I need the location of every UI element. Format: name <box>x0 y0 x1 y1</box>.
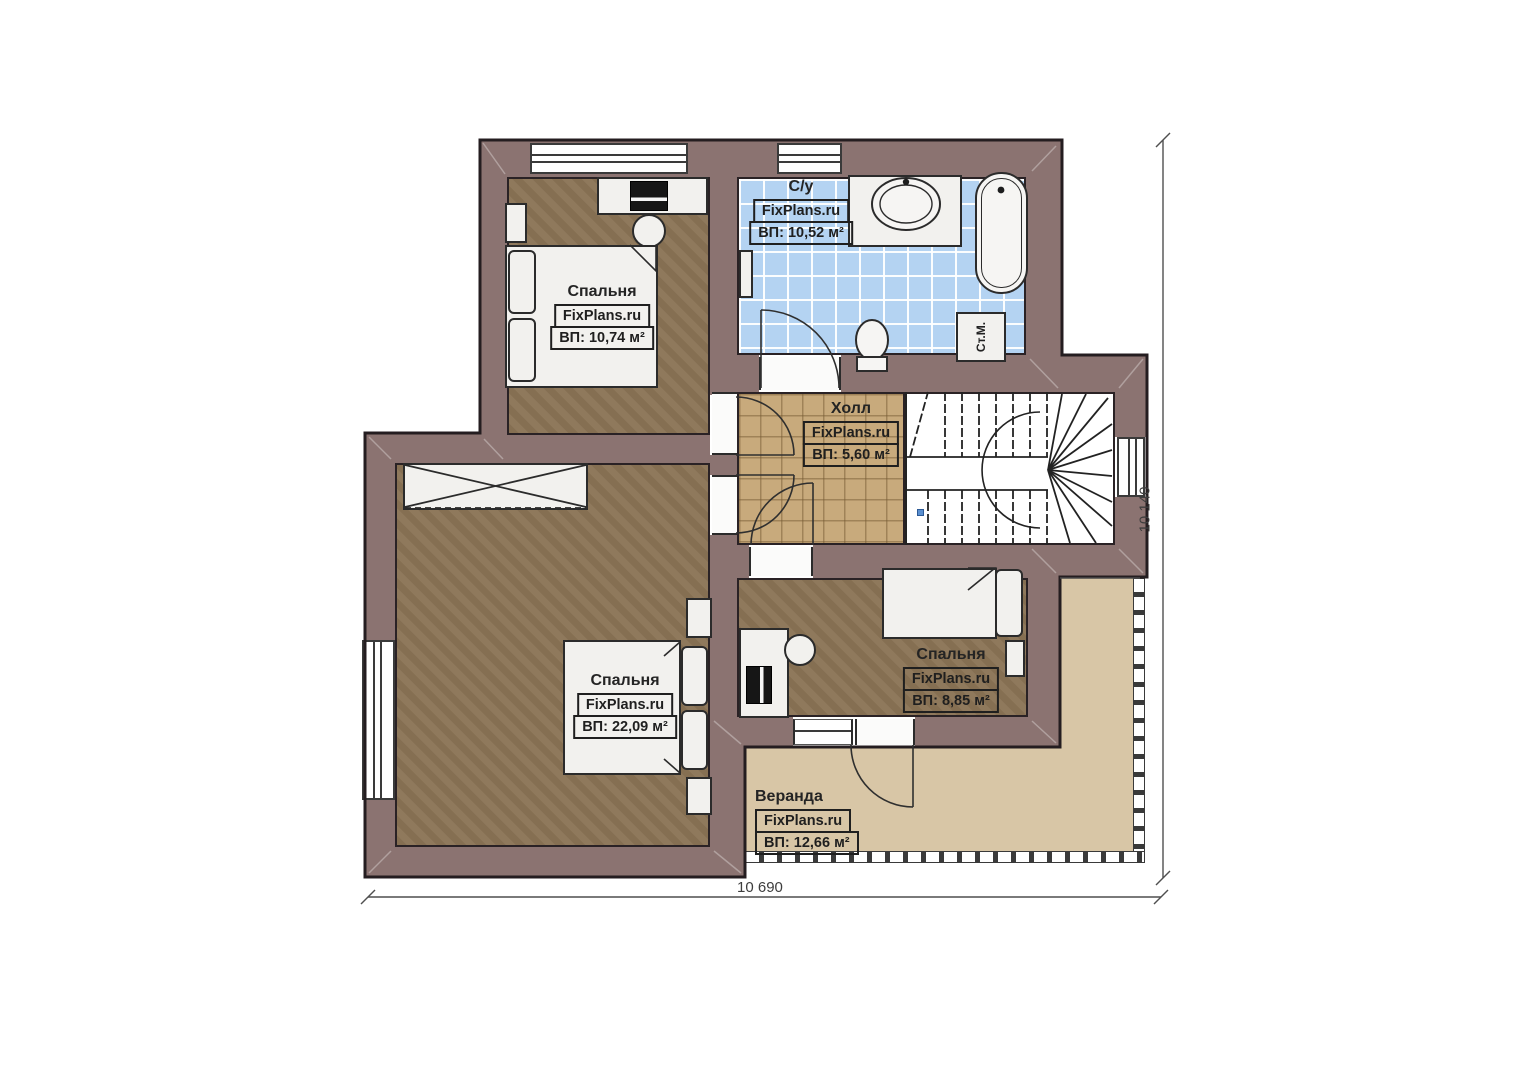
brand-watermark: FixPlans.ru <box>577 693 673 717</box>
chair <box>632 214 666 248</box>
floor-plan-canvas: Ст.М. <box>0 0 1528 1080</box>
room-label-bedroom-top-left: Спальня FixPlans.ru ВП: 10,74 м² <box>550 283 654 350</box>
room-label-hall: Холл FixPlans.ru ВП: 5,60 м² <box>803 400 899 467</box>
floor-stairs <box>905 392 1115 545</box>
door-opening-bedroom-tl <box>712 392 737 455</box>
room-title: Спальня <box>916 646 985 664</box>
computer-monitor-icon <box>746 666 772 704</box>
bathtub-inner <box>981 178 1022 288</box>
window-top-bedroom <box>530 143 688 174</box>
computer-monitor-icon <box>630 181 668 211</box>
room-label-bathroom: С/у FixPlans.ru ВП: 10,52 м² <box>749 178 853 245</box>
wall-bottom <box>365 847 745 877</box>
bed-single <box>882 568 997 639</box>
door-opening-bedroom-right <box>749 547 813 576</box>
window-left-bedroom-large <box>362 640 395 800</box>
wall-stairs-right-upper <box>1115 392 1147 437</box>
room-title: Веранда <box>755 788 823 806</box>
pillow <box>995 569 1023 637</box>
brand-watermark: FixPlans.ru <box>903 667 999 691</box>
pillow <box>681 646 708 706</box>
pillow <box>508 318 536 382</box>
room-title: Спальня <box>590 672 659 690</box>
pillow <box>508 250 536 314</box>
room-area: ВП: 22,09 м² <box>573 715 677 739</box>
dimension-width: 10 690 <box>737 879 783 896</box>
nightstand <box>686 777 712 815</box>
nightstand <box>686 598 712 638</box>
room-title: Спальня <box>567 283 636 301</box>
bathroom-shelf <box>739 250 753 298</box>
wall-mid-horizontal <box>507 435 710 463</box>
brand-watermark: FixPlans.ru <box>803 421 899 445</box>
door-opening-veranda <box>855 719 915 745</box>
room-title: Холл <box>831 400 871 418</box>
vanity <box>848 175 962 247</box>
room-area: ВП: 8,85 м² <box>903 689 999 713</box>
room-area: ВП: 10,74 м² <box>550 326 654 350</box>
door-opening-bathroom <box>759 357 841 390</box>
window-top-bathroom <box>777 143 842 174</box>
room-area: ВП: 10,52 м² <box>749 221 853 245</box>
wall-interior-upper <box>710 177 737 395</box>
room-title: С/у <box>789 178 814 196</box>
room-area: ВП: 5,60 м² <box>803 443 899 467</box>
washing-machine-label: Ст.М. <box>974 322 988 352</box>
washing-machine: Ст.М. <box>956 312 1006 362</box>
stair-handrail-marker <box>917 509 924 516</box>
nightstand <box>505 203 527 243</box>
wall-left-upper <box>480 140 507 463</box>
wall-bath-right <box>1026 140 1062 355</box>
window-veranda-sill <box>793 719 853 745</box>
wall-interior-pier <box>710 455 737 475</box>
brand-watermark: FixPlans.ru <box>755 809 851 833</box>
chair <box>784 634 816 666</box>
dimension-height: 10 140 <box>1136 487 1153 533</box>
nightstand <box>1005 640 1025 677</box>
pillow <box>681 710 708 770</box>
wall-bedroom-right-bottom-left <box>710 717 793 747</box>
door-opening-bedroom-large <box>712 475 737 535</box>
veranda-railing-right <box>1133 578 1145 863</box>
room-label-bedroom-right: Спальня FixPlans.ru ВП: 8,85 м² <box>903 646 999 713</box>
room-area: ВП: 12,66 м² <box>755 831 859 855</box>
room-label-bedroom-large: Спальня FixPlans.ru ВП: 22,09 м² <box>573 672 677 739</box>
room-label-veranda: Веранда FixPlans.ru ВП: 12,66 м² <box>755 788 859 855</box>
wall-bedroom-right-right <box>1028 578 1060 747</box>
wardrobe <box>403 463 588 510</box>
brand-watermark: FixPlans.ru <box>753 199 849 223</box>
wall-hall-bottom-left <box>710 545 749 578</box>
brand-watermark: FixPlans.ru <box>554 304 650 328</box>
